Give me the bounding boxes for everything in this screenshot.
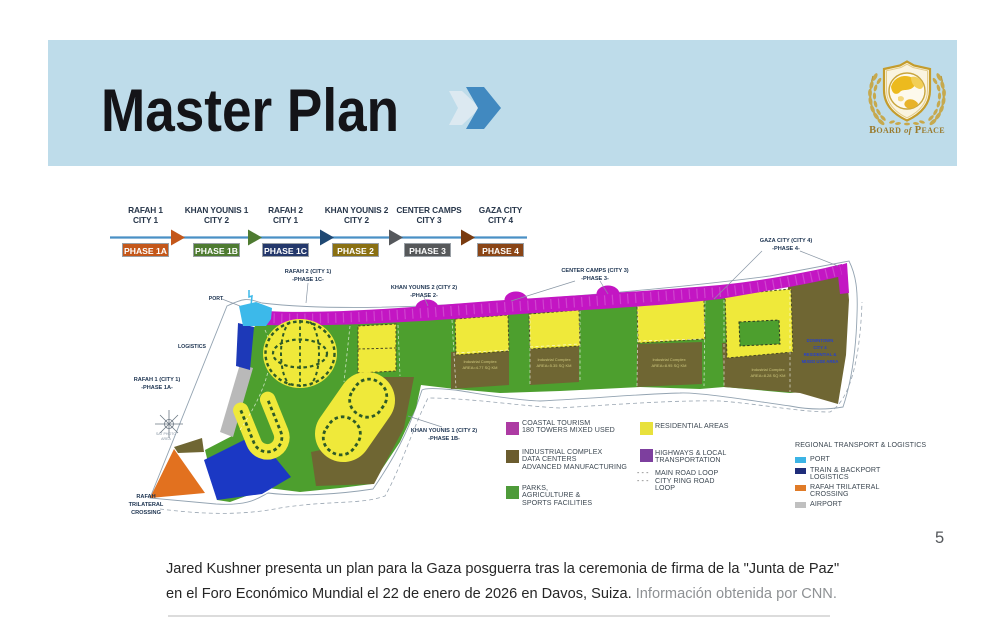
- svg-text:AREA=8.28 SQ KM: AREA=8.28 SQ KM: [750, 373, 785, 378]
- svg-text:AREA=5.35 SQ KM: AREA=5.35 SQ KM: [536, 363, 571, 368]
- svg-text:Industrial Complex: Industrial Complex: [751, 367, 784, 372]
- svg-text:TRILATERAL: TRILATERAL: [129, 502, 164, 508]
- svg-text:Industrial Complex: Industrial Complex: [463, 359, 496, 364]
- svg-text:-PHASE 1B-: -PHASE 1B-: [428, 436, 460, 442]
- svg-text:AREA: AREA: [161, 437, 171, 441]
- svg-text:RAFAH: RAFAH: [136, 494, 155, 500]
- svg-text:-PHASE 1C-: -PHASE 1C-: [292, 277, 324, 283]
- svg-text:RAFAH 2 (CITY 1): RAFAH 2 (CITY 1): [285, 269, 332, 275]
- svg-text:KHAN YOUNIS 2 (CITY 2): KHAN YOUNIS 2 (CITY 2): [391, 285, 457, 291]
- svg-text:RAFAH 1 (CITY 1): RAFAH 1 (CITY 1): [134, 377, 181, 383]
- svg-text:KHAN YOUNIS 1 (CITY 2): KHAN YOUNIS 1 (CITY 2): [411, 428, 477, 434]
- svg-text:PORT: PORT: [209, 296, 224, 302]
- svg-text:-PHASE 2-: -PHASE 2-: [410, 293, 438, 299]
- svg-text:MIXED USE AREA: MIXED USE AREA: [802, 359, 839, 364]
- svg-text:-PHASE 3-: -PHASE 3-: [581, 276, 609, 282]
- svg-text:Industrial Complex: Industrial Complex: [537, 357, 570, 362]
- svg-text:Industrial Complex: Industrial Complex: [652, 357, 685, 362]
- svg-text:DOWNTOWN: DOWNTOWN: [807, 338, 834, 343]
- svg-text:CROSSING: CROSSING: [131, 510, 161, 516]
- svg-text:CENTER CAMPS (CITY 3): CENTER CAMPS (CITY 3): [561, 268, 628, 274]
- svg-text:GAZA CITY (CITY 4): GAZA CITY (CITY 4): [760, 238, 813, 244]
- svg-text:LOGISTICS: LOGISTICS: [178, 344, 206, 350]
- svg-text:RESIDENTIAL &: RESIDENTIAL &: [804, 352, 837, 357]
- svg-text:AREA=8.95 SQ KM: AREA=8.95 SQ KM: [651, 363, 686, 368]
- svg-text:AREA=4.77 SQ KM: AREA=4.77 SQ KM: [462, 365, 497, 370]
- svg-text:-PHASE 4-: -PHASE 4-: [772, 246, 800, 252]
- svg-text:SAT PHOTO: SAT PHOTO: [156, 432, 177, 436]
- svg-text:-PHASE 1A-: -PHASE 1A-: [141, 385, 173, 391]
- svg-text:CITY 4: CITY 4: [813, 345, 827, 350]
